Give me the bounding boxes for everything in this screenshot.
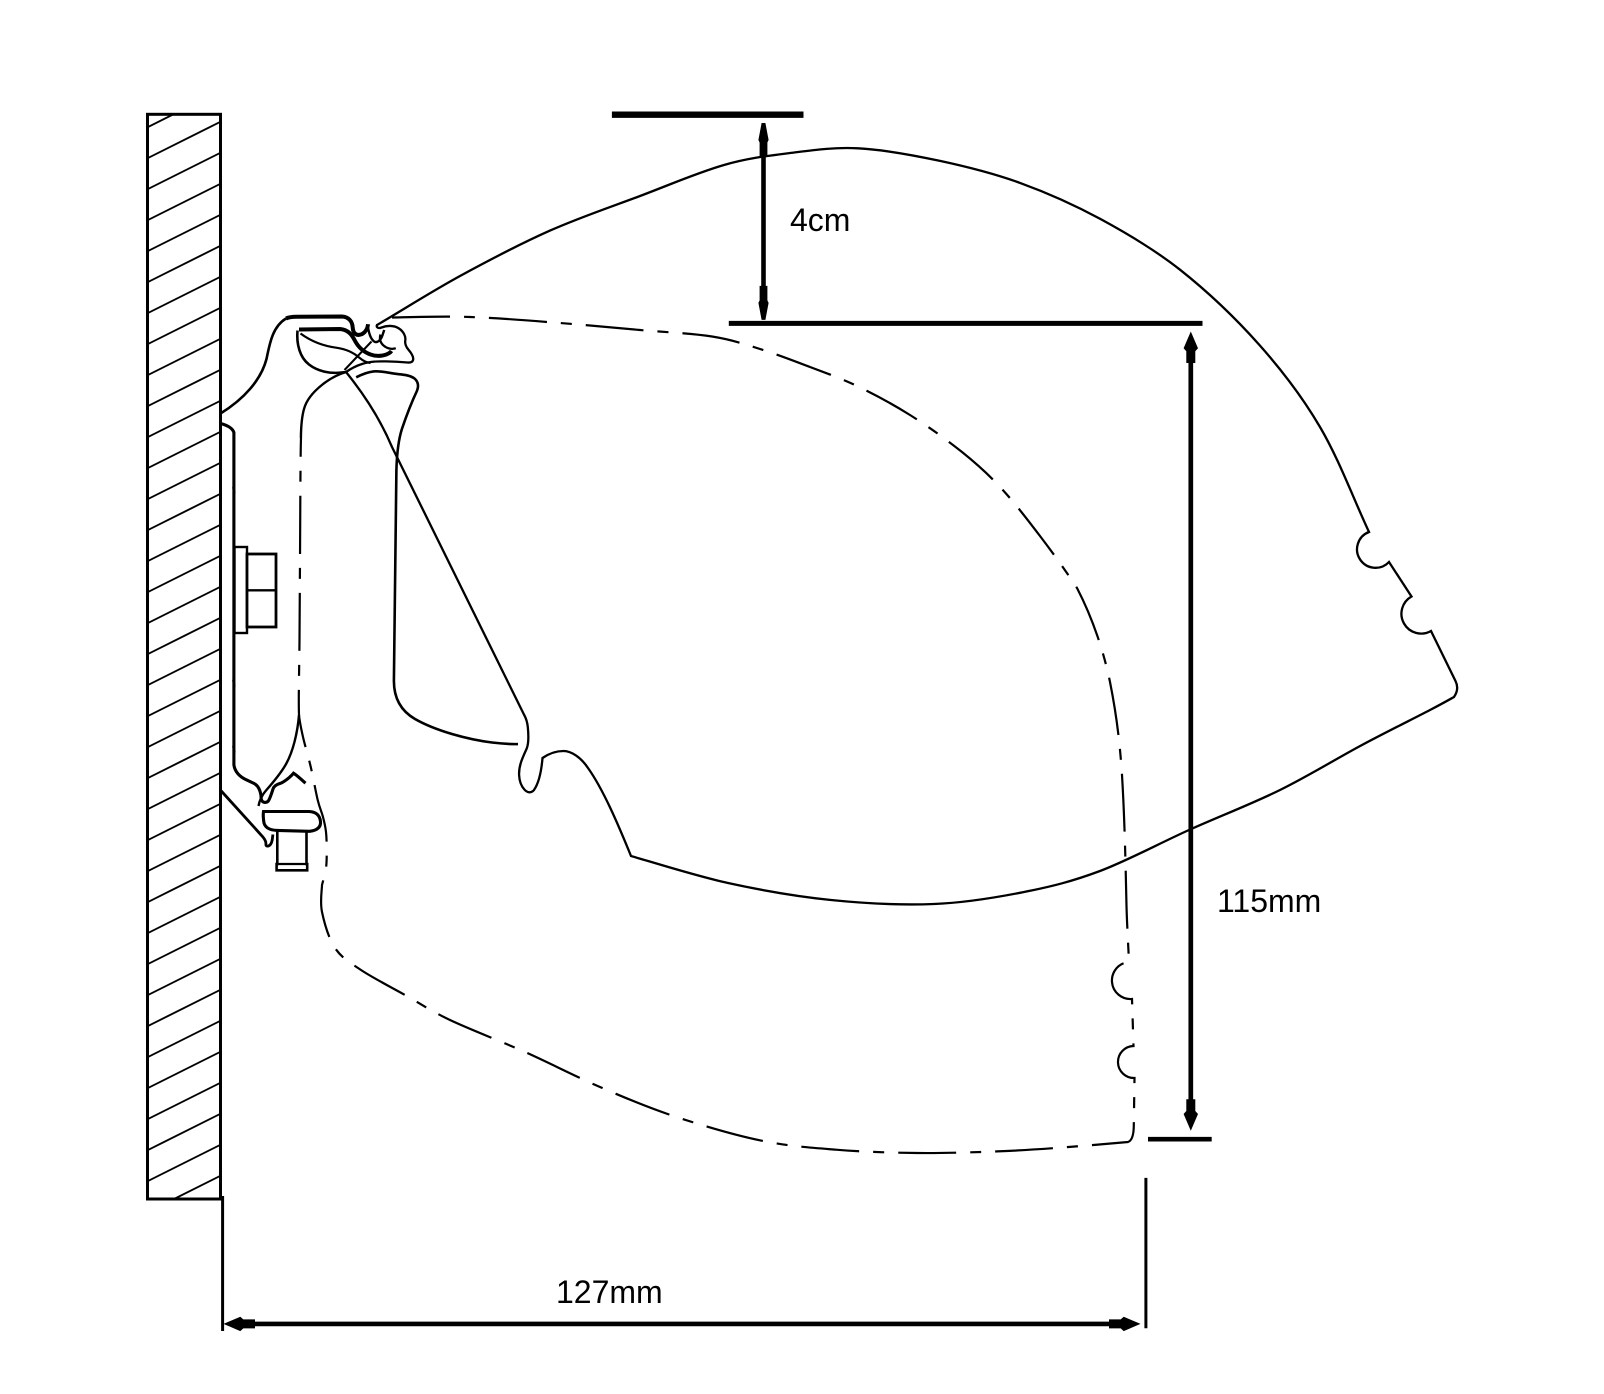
svg-text:127mm: 127mm xyxy=(556,1274,663,1310)
svg-text:4cm: 4cm xyxy=(790,202,850,238)
svg-text:115mm: 115mm xyxy=(1217,883,1321,919)
